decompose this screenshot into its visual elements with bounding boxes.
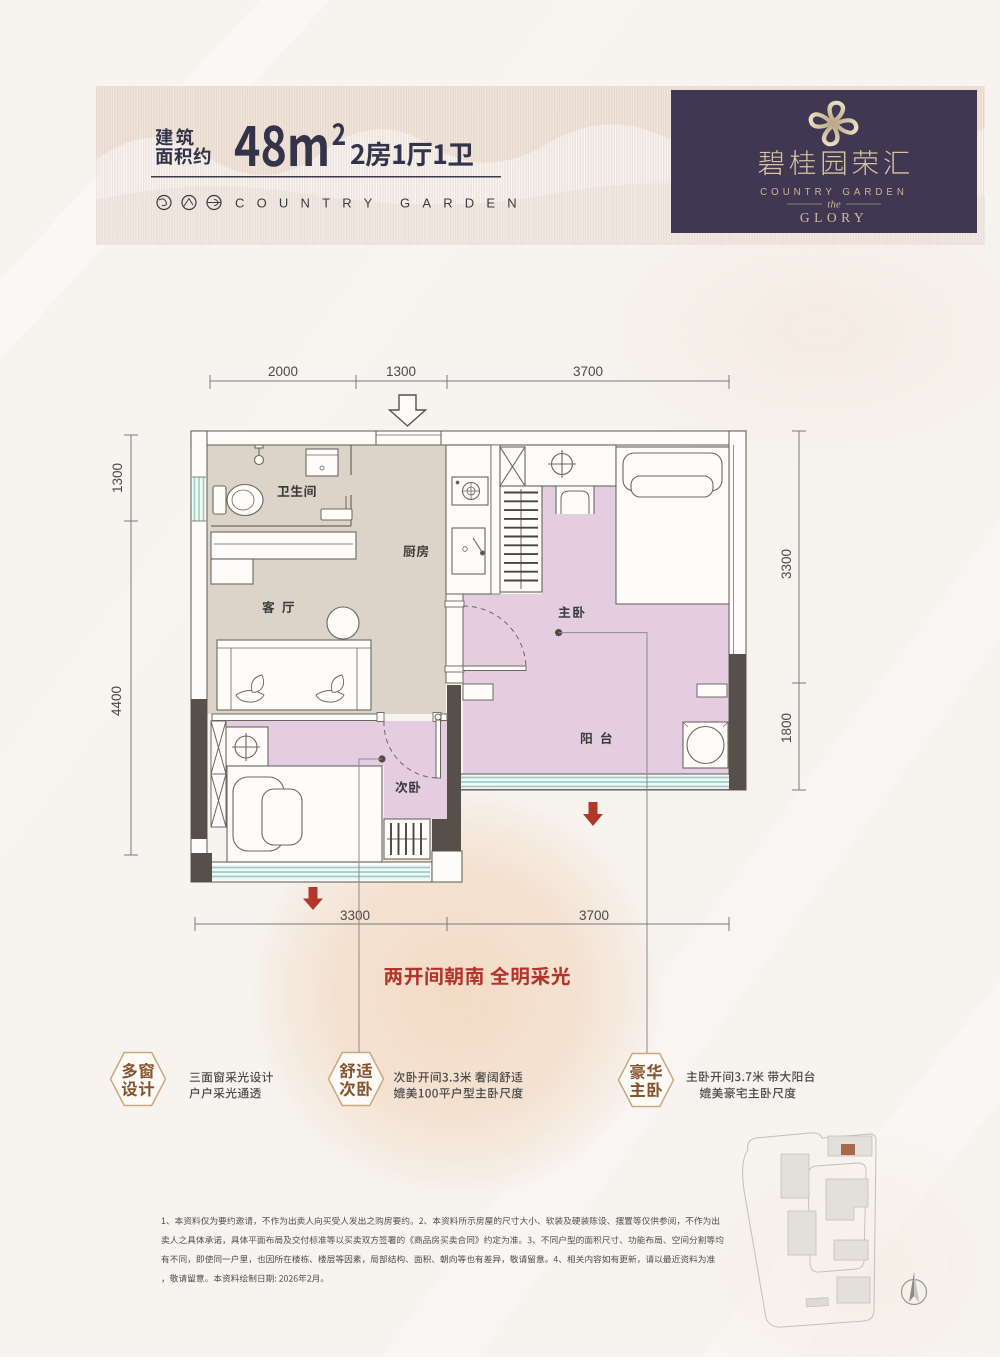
svg-text:4400: 4400 [109,686,124,716]
svg-text:3700: 3700 [573,364,603,379]
svg-text:COUNTRY GARDEN: COUNTRY GARDEN [760,187,908,198]
svg-text:1800: 1800 [779,713,794,743]
svg-text:the: the [827,199,841,211]
svg-text:3700: 3700 [579,908,609,923]
svg-text:3300: 3300 [779,549,794,579]
svg-text:1300: 1300 [110,463,125,493]
svg-text:GLORY: GLORY [800,210,868,225]
svg-text:COUNTRY GARDEN: COUNTRY GARDEN [235,196,529,211]
svg-text:1300: 1300 [386,364,416,379]
svg-text:2000: 2000 [268,364,298,379]
svg-text:3300: 3300 [340,908,370,923]
